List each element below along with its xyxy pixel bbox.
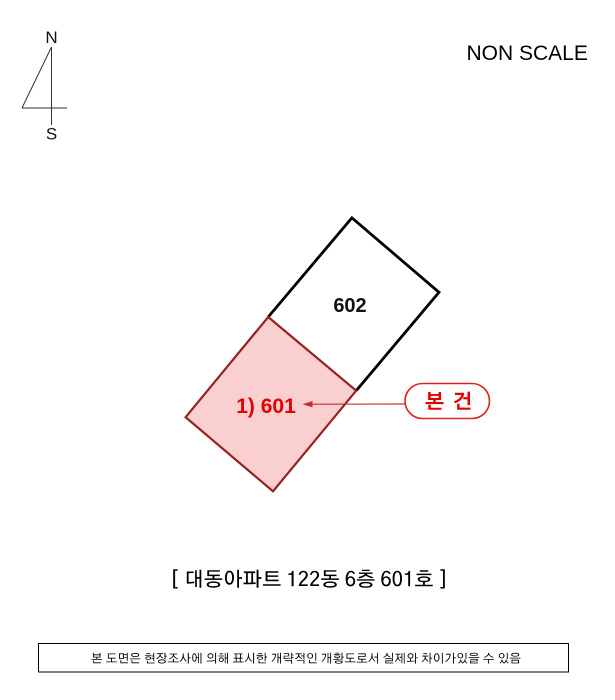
svg-text:NON SCALE: NON SCALE [467,42,588,65]
svg-text:N: N [45,28,57,47]
svg-text:1) 601: 1) 601 [236,395,296,418]
svg-text:S: S [46,125,57,144]
svg-text:602: 602 [333,295,366,317]
